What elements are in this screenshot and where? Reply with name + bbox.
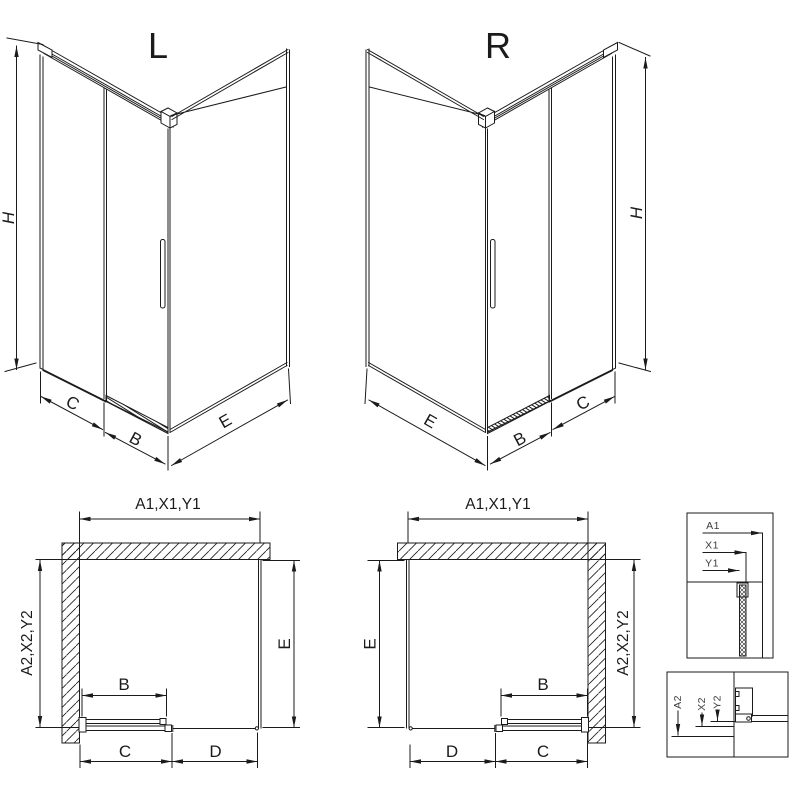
plan-right-dim-e-label: E bbox=[361, 638, 380, 649]
fixed-panel-end-left-plan bbox=[255, 727, 258, 730]
iso-view-right: R H E B C bbox=[365, 25, 651, 470]
dim-label-h-right: H bbox=[627, 206, 646, 219]
side-panel-right bbox=[366, 49, 486, 433]
fixed-panel-end-right-plan bbox=[409, 727, 412, 730]
fixed-panel-right-plan bbox=[412, 726, 495, 732]
plan-right-dim-a2-label: A2,X2,Y2 bbox=[615, 610, 632, 676]
plan-left-dim-b-label: B bbox=[118, 675, 129, 694]
dim-line-e-right bbox=[369, 400, 485, 466]
plan-left-dim-d-label: D bbox=[209, 742, 221, 761]
detail-floor-box bbox=[667, 672, 788, 757]
side-panel-left bbox=[170, 49, 290, 433]
plan-left-dim-c-label: C bbox=[119, 742, 131, 761]
side-glass-left-plan bbox=[259, 560, 262, 729]
plan-left-dim-a2-label: A2,X2,Y2 bbox=[19, 610, 36, 676]
plan-left-dim-e-label: E bbox=[275, 638, 294, 649]
detail-floor-label-a2: A2 bbox=[672, 695, 684, 709]
plan-view-left: A1,X1,Y1 A2,X2,Y2 E B C D bbox=[19, 496, 300, 768]
plan-view-right: A1,X1,Y1 A2,X2,Y2 E B D C bbox=[361, 496, 641, 768]
dim-label-h-left: H bbox=[0, 211, 18, 224]
detail-floor-section: A2 X2 Y2 bbox=[667, 672, 788, 757]
plan-right-dim-b-label: B bbox=[537, 675, 548, 694]
rail-roller bbox=[747, 717, 751, 721]
door-assembly-left-plan bbox=[79, 718, 172, 733]
door-handle-left bbox=[161, 240, 166, 309]
detail-wall-label-a1: A1 bbox=[706, 520, 720, 532]
dim-label-b-right: B bbox=[510, 428, 529, 450]
detail-wall-section: A1 X1 Y1 bbox=[687, 513, 773, 658]
wall-top-left-plan bbox=[62, 543, 270, 560]
detail-wall-box bbox=[687, 513, 773, 658]
detail-wall-label-y1: Y1 bbox=[705, 558, 719, 570]
fixed-panel-left-plan bbox=[173, 726, 256, 732]
shower-enclosure-drawing: L H C B E R bbox=[0, 0, 800, 800]
side-glass-right-plan bbox=[407, 560, 410, 729]
door-profile-section bbox=[736, 688, 753, 716]
variant-label-right: R bbox=[485, 25, 511, 66]
variant-label-left: L bbox=[148, 25, 168, 66]
dim-label-c-left: C bbox=[63, 392, 83, 415]
glass-section-strip bbox=[740, 585, 747, 656]
dim-label-c-right: C bbox=[573, 392, 593, 415]
plan-left-dim-a1-label: A1,X1,Y1 bbox=[135, 496, 201, 513]
plan-right-dim-c-label: C bbox=[537, 742, 549, 761]
dim-label-e-right: E bbox=[421, 410, 440, 432]
detail-floor-lines bbox=[672, 672, 788, 757]
door-bottom-rail-right bbox=[488, 396, 550, 434]
wall-top-right-plan bbox=[398, 543, 606, 560]
iso-view-left: L H C B E bbox=[0, 25, 291, 470]
detail-floor-label-y2: Y2 bbox=[712, 695, 724, 709]
dim-line-e-left bbox=[172, 400, 288, 466]
dim-label-b-left: B bbox=[126, 428, 145, 450]
door-assembly-right-plan bbox=[496, 718, 589, 733]
detail-floor-label-x2: X2 bbox=[696, 697, 708, 711]
wall-side-left-plan bbox=[62, 543, 80, 743]
door-handle-right bbox=[491, 240, 496, 309]
detail-wall-label-x1: X1 bbox=[705, 540, 719, 552]
wall-side-right-plan bbox=[588, 543, 606, 743]
plan-right-dim-a1-label: A1,X1,Y1 bbox=[465, 496, 531, 513]
detail-wall-lines bbox=[687, 533, 763, 658]
door-bottom-rail-left bbox=[106, 396, 168, 434]
dim-extensions-left bbox=[5, 38, 291, 470]
plan-right-dim-d-label: D bbox=[446, 742, 458, 761]
dim-label-e-left: E bbox=[216, 410, 235, 432]
technical-drawing-sheet: L H C B E R bbox=[0, 0, 800, 800]
